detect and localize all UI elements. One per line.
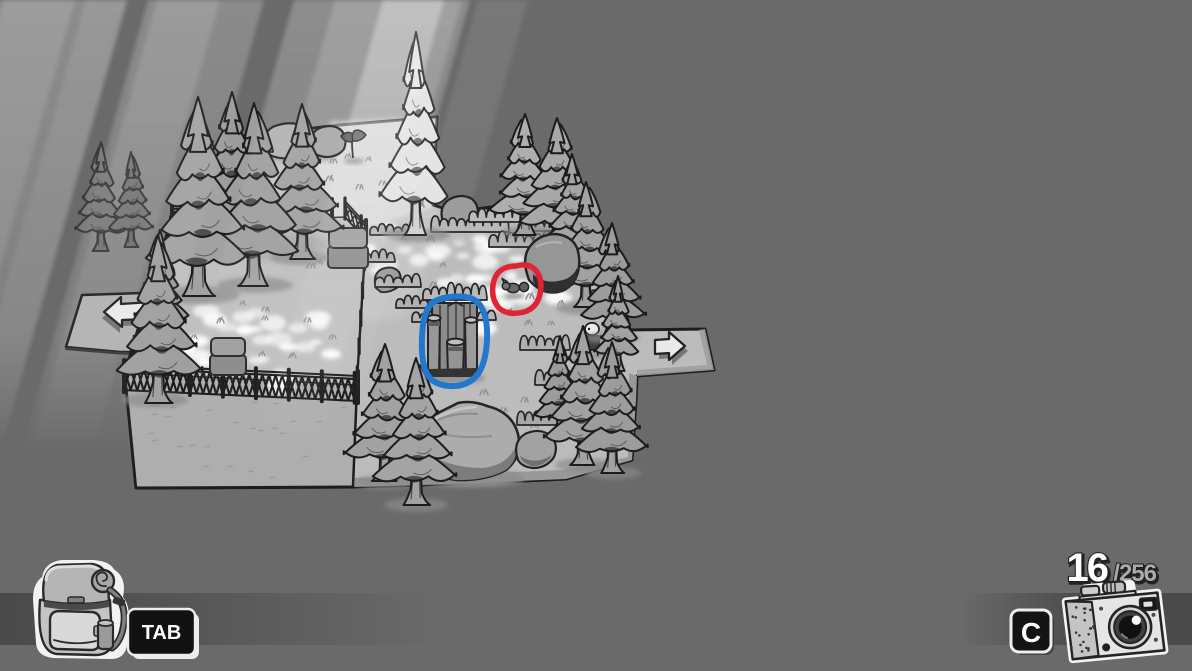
svg-text:C: C: [1021, 617, 1041, 648]
svg-text:TAB: TAB: [142, 622, 182, 644]
